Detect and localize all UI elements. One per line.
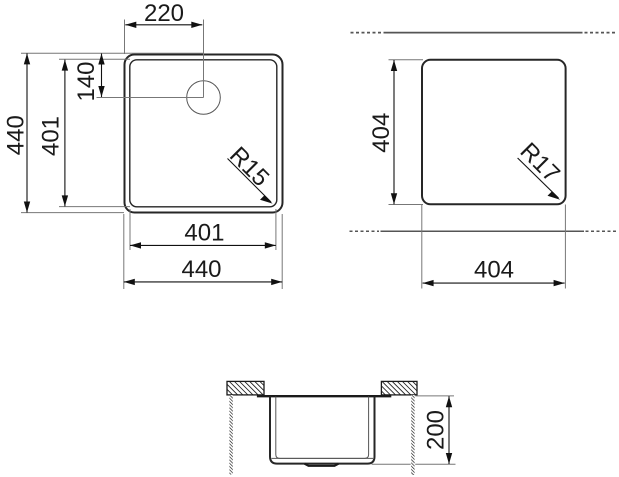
- svg-text:220: 220: [144, 0, 184, 27]
- svg-text:440: 440: [181, 256, 221, 283]
- svg-text:140: 140: [73, 61, 100, 101]
- svg-text:404: 404: [368, 113, 395, 153]
- svg-text:401: 401: [38, 116, 65, 156]
- svg-text:404: 404: [474, 256, 514, 283]
- svg-text:200: 200: [423, 410, 450, 450]
- svg-text:401: 401: [184, 220, 224, 247]
- svg-text:R17: R17: [515, 138, 565, 188]
- svg-text:440: 440: [3, 115, 30, 155]
- svg-text:R15: R15: [224, 142, 274, 192]
